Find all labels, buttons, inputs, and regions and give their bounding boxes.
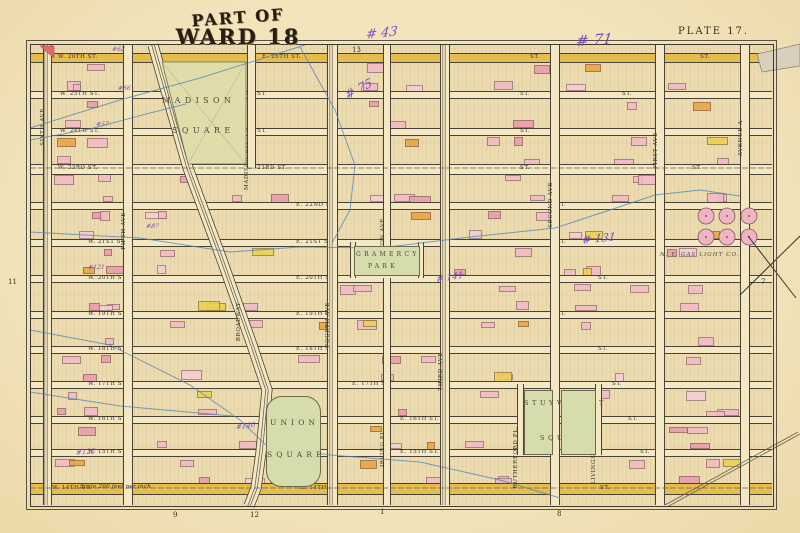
gas-tank-center — [705, 236, 707, 238]
adjacent-plate-ref: 1 — [380, 508, 384, 516]
park-label-gramercy: PARK — [368, 263, 398, 270]
adjacent-plate-ref: 7 — [761, 278, 765, 286]
park-label-union: UNION — [270, 418, 319, 427]
annotation-handwritten: #66 — [117, 85, 131, 92]
stream-line — [30, 330, 266, 445]
annotation-handwritten: #121 — [87, 264, 105, 271]
gas-tank-center — [726, 236, 728, 238]
annotation-handwritten: #87 — [145, 223, 159, 230]
adjacent-plate-ref: 11 — [8, 278, 17, 286]
gas-tank-center — [705, 215, 707, 217]
park-label-madison: MADISON — [162, 96, 235, 105]
map-title: PART OF WARD 18 — [158, 10, 318, 47]
park-label-gramercy: GRAMERCY — [356, 251, 420, 258]
stream-line — [30, 190, 740, 252]
landmark-label: N. Y. GAS LIGHT CO. — [660, 252, 740, 258]
park-stuyvesant_e — [561, 390, 596, 455]
annotation-handwritten: #57 — [95, 121, 109, 128]
plate-number-label: PLATE 17. — [678, 26, 749, 37]
annotation-handwritten: #62 — [111, 46, 125, 53]
park-label-madison: SQUARE — [172, 126, 235, 135]
gas-tank-center — [748, 215, 750, 217]
park-union — [266, 396, 321, 487]
adjacent-plate-ref: 12 — [250, 511, 259, 519]
rail-spur — [667, 434, 800, 507]
adjacent-plate-ref: 13 — [352, 46, 361, 54]
stream-line — [30, 392, 232, 416]
park-label-union: SQUARE — [267, 450, 326, 459]
gas-tank-center — [726, 215, 728, 217]
map-sheet: W. 26TH ST.E. 26TH ST.ST.ST.W. 25TH ST.E… — [0, 0, 800, 533]
annotation-handwritten: # 71 — [575, 30, 614, 51]
rail-spur — [665, 432, 798, 505]
adjacent-plate-ref: 8 — [557, 510, 561, 518]
adjacent-plate-ref: 9 — [173, 511, 177, 519]
broadway-label: BROADWAY — [236, 302, 242, 341]
scale-note: Scale 200 feet per inch — [80, 484, 151, 490]
margin-wedge — [757, 44, 800, 72]
stream-line — [300, 47, 355, 243]
compass-cross — [748, 236, 796, 298]
